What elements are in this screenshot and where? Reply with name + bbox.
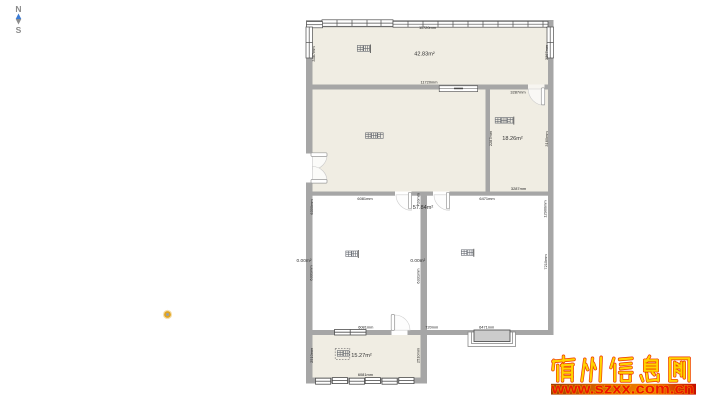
svg-text:11720mm: 11720mm [420, 79, 437, 84]
svg-text:3387mm: 3387mm [311, 46, 316, 61]
svg-text:6300mm: 6300mm [309, 199, 314, 214]
svg-text:720mm: 720mm [416, 193, 421, 206]
svg-text:18.26m²: 18.26m² [502, 136, 523, 142]
svg-text:3387mm: 3387mm [544, 45, 549, 60]
svg-text:www.szxx.com.cn: www.szxx.com.cn [550, 380, 694, 397]
svg-text:3287mm: 3287mm [510, 90, 525, 95]
svg-text:0.00m²: 0.00m² [410, 258, 425, 264]
svg-text:7210mm: 7210mm [543, 254, 548, 269]
svg-text:3180mm: 3180mm [544, 131, 549, 146]
svg-text:720mm: 720mm [425, 325, 438, 330]
svg-text:6471mm: 6471mm [479, 196, 494, 201]
svg-text:3287mm: 3287mm [511, 186, 526, 191]
svg-text:6081mm: 6081mm [357, 196, 372, 201]
svg-text:2287mm: 2287mm [488, 131, 493, 146]
svg-text:S: S [16, 25, 22, 35]
svg-text:12900mm: 12900mm [542, 200, 547, 217]
svg-text:6081mm: 6081mm [358, 325, 373, 330]
svg-text:6331mm: 6331mm [416, 268, 421, 283]
svg-text:0.00m²: 0.00m² [297, 258, 312, 264]
svg-text:6331mm: 6331mm [308, 265, 313, 280]
svg-text:42.83m²: 42.83m² [414, 51, 435, 57]
svg-text:2510mm: 2510mm [309, 348, 314, 363]
svg-text:15.27m²: 15.27m² [351, 353, 372, 359]
svg-text:2510mm: 2510mm [415, 348, 420, 363]
svg-text:N: N [15, 4, 21, 14]
svg-text:6471mm: 6471mm [479, 324, 494, 329]
svg-text:6081mm: 6081mm [358, 372, 373, 377]
svg-text:11720mm: 11720mm [419, 25, 436, 30]
